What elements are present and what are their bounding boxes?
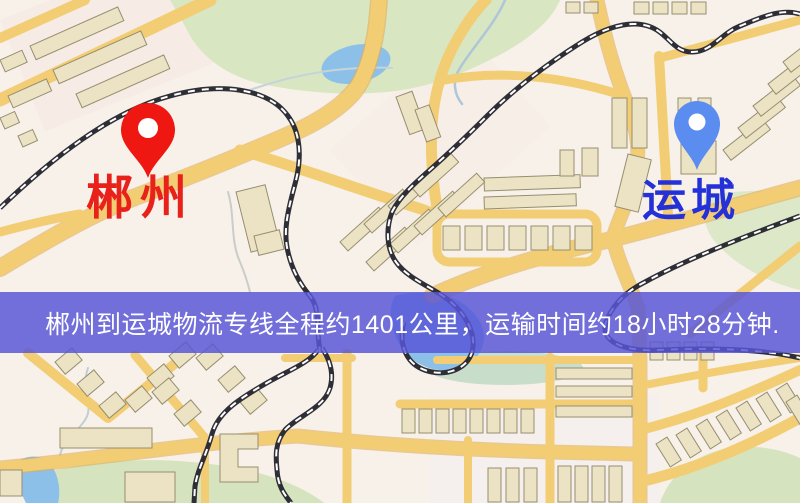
origin-pin-icon [118,100,178,180]
base-map [0,0,800,503]
route-info-banner: 郴州到运城物流专线全程约1401公里，运输时间约18小时28分钟. [0,292,800,353]
origin-city-label: 郴州 [86,176,194,223]
destination-city-label: 运城 [642,179,740,223]
route-map-image: 郴州 运城 郴州到运城物流专线全程约1401公里，运输时间约18小时28分钟. [0,0,800,503]
route-info-text: 郴州到运城物流专线全程约1401公里，运输时间约18小时28分钟. [0,305,780,341]
destination-pin-icon [671,98,723,174]
